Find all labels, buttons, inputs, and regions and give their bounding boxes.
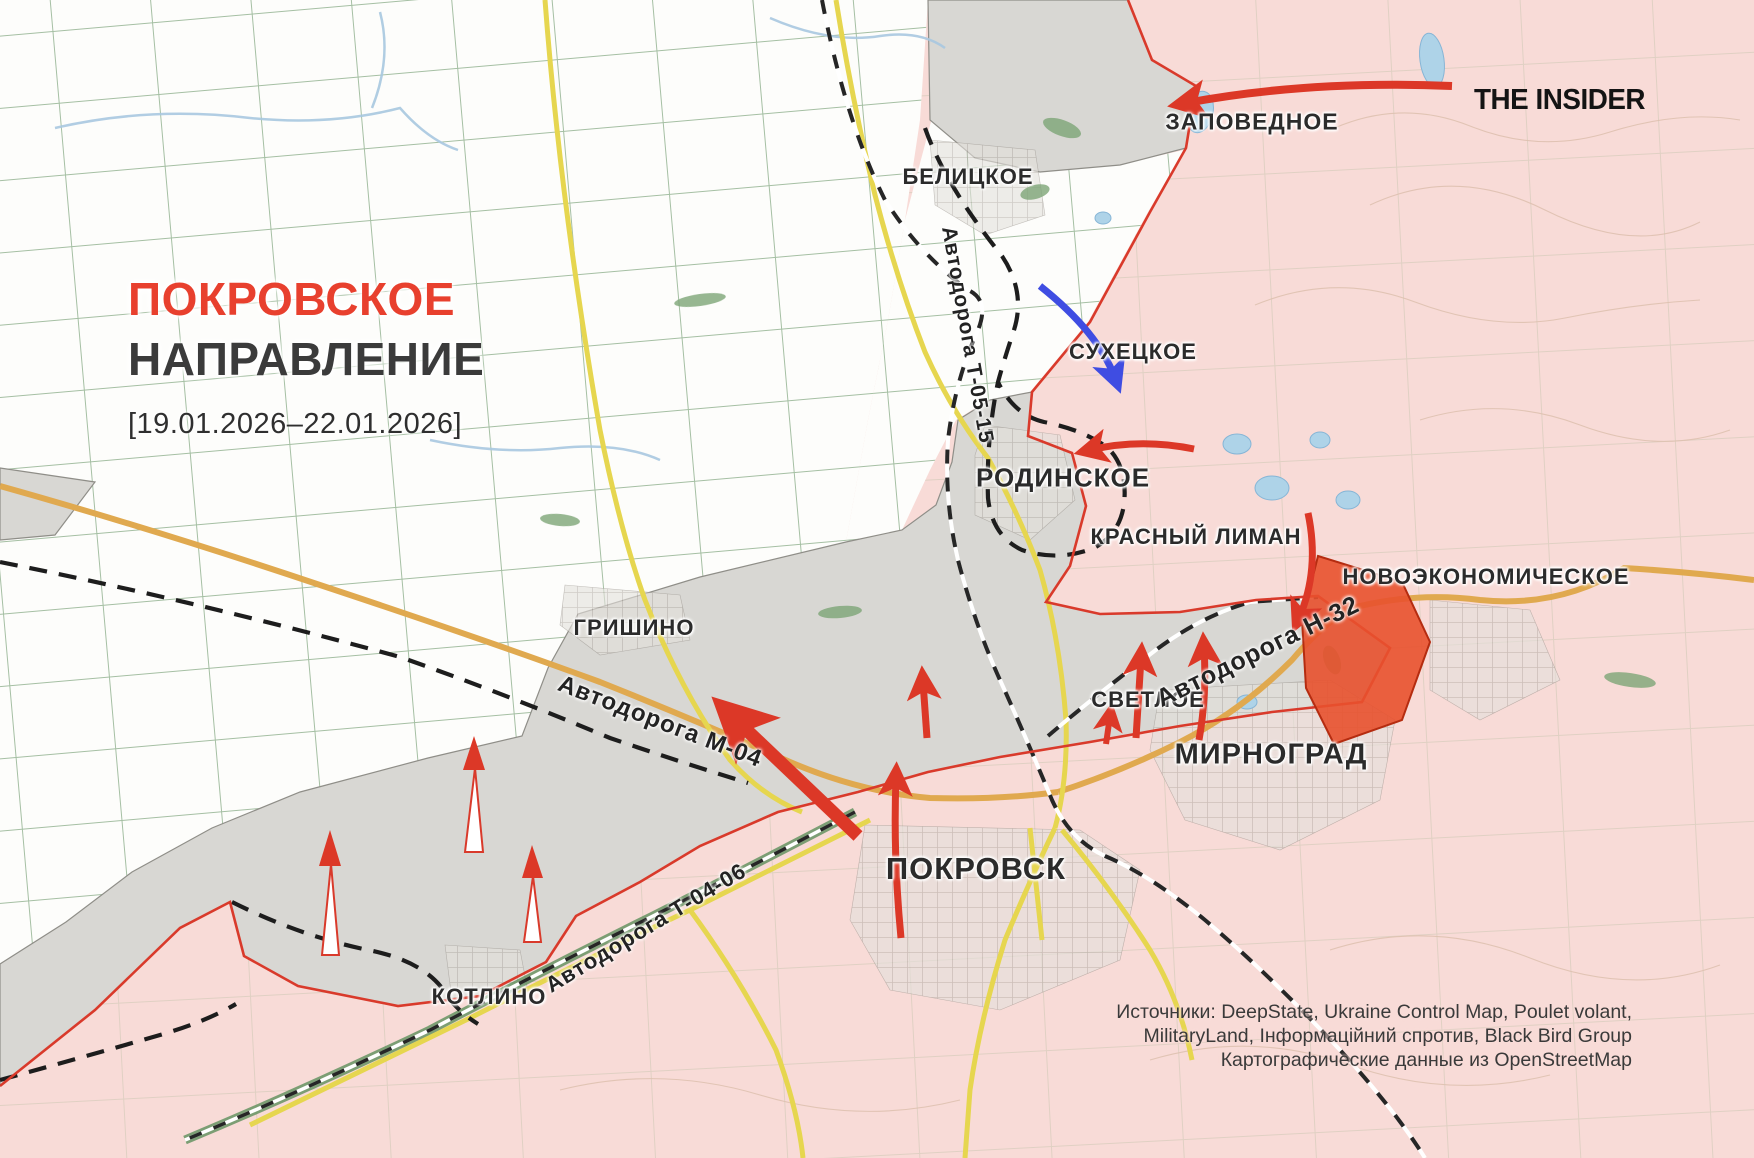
settlement-label-kotlino: КОТЛИНО [432, 984, 547, 1010]
settlement-label-sukhetskoye: СУХЕЦКОЕ [1069, 339, 1197, 365]
sources-line-3: Картографические данные из OpenStreetMap [1116, 1048, 1632, 1072]
settlement-label-belitskoye: БЕЛИЦКОЕ [902, 164, 1033, 190]
map-title-accent: ПОКРОВСКОЕ [128, 272, 455, 326]
settlement-label-pokrovsk: ПОКРОВСК [886, 851, 1066, 887]
settlement-label-rodinskoye: РОДИНСКОЕ [976, 463, 1150, 494]
map-date-range: [19.01.2026–22.01.2026] [128, 408, 462, 441]
sources-line-2: MilitaryLand, Інформаційний спротив, Bla… [1116, 1024, 1632, 1048]
map-title: НАПРАВЛЕНИЕ [128, 332, 484, 386]
settlement-label-mirnograd: МИРНОГРАД [1175, 739, 1368, 772]
settlement-label-grishino: ГРИШИНО [574, 615, 695, 641]
settlement-label-krasny-liman: КРАСНЫЙ ЛИМАН [1090, 524, 1301, 550]
settlement-label-zapovednoye: ЗАПОВЕДНОЕ [1165, 109, 1338, 136]
arrow-svetloye [1106, 716, 1110, 744]
sources-line-1: Источники: DeepState, Ukraine Control Ma… [1116, 1000, 1632, 1024]
war-map: ПОКРОВСКОЕ НАПРАВЛЕНИЕ [19.01.2026–22.01… [0, 0, 1754, 1158]
the-insider-logo: THE INSIDER [1474, 84, 1645, 117]
settlement-label-novoekonomicheskoye: НОВОЭКОНОМИЧЕСКОЕ [1342, 564, 1629, 590]
sources-note: Источники: DeepState, Ukraine Control Ma… [1116, 1000, 1632, 1072]
arrow-svetloye-west [923, 682, 927, 738]
